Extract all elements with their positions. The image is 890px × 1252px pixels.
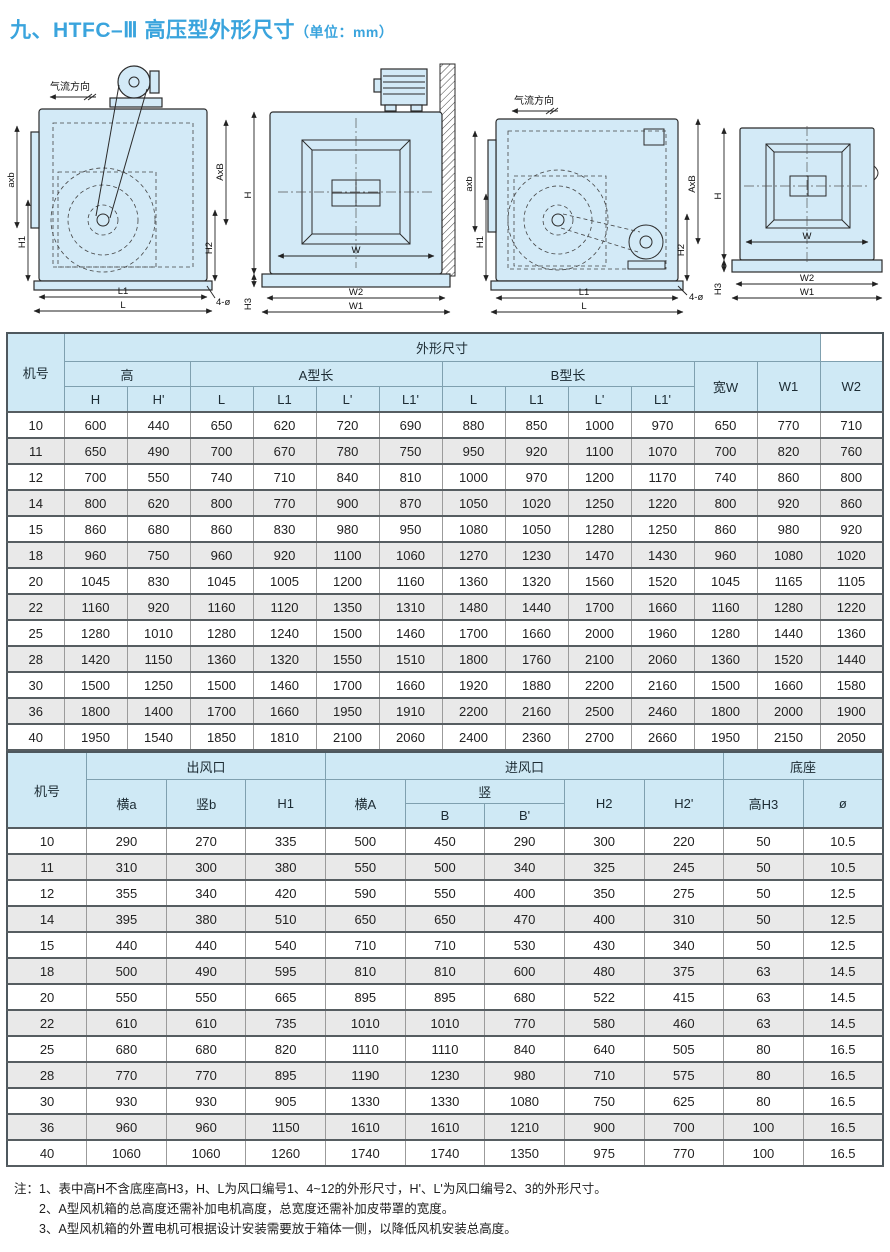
cell: 750 xyxy=(564,1088,644,1114)
dim-h: H xyxy=(243,191,254,198)
cell: 1000 xyxy=(442,464,505,490)
cell: 960 xyxy=(694,542,757,568)
cell: 300 xyxy=(564,828,644,854)
cell: 1310 xyxy=(379,594,442,620)
cell: 770 xyxy=(485,1010,565,1036)
cell: 1230 xyxy=(505,542,568,568)
cell: 950 xyxy=(442,438,505,464)
cell: 1160 xyxy=(190,594,253,620)
cell: 290 xyxy=(87,828,167,854)
cell: 960 xyxy=(87,1114,167,1140)
cell: 420 xyxy=(246,880,326,906)
cell: 1700 xyxy=(442,620,505,646)
cell: 1160 xyxy=(379,568,442,594)
cell: 1740 xyxy=(326,1140,406,1166)
cell: 1060 xyxy=(379,542,442,568)
cell: 1880 xyxy=(505,672,568,698)
cell: 14.5 xyxy=(803,984,883,1010)
cell-machine-no: 25 xyxy=(7,1036,87,1062)
header-a-L1-prime: L1' xyxy=(379,387,442,413)
dim-w1: W1 xyxy=(349,301,363,312)
cell: 325 xyxy=(564,854,644,880)
header-height-h3: 高H3 xyxy=(724,780,804,829)
cell: 1910 xyxy=(379,698,442,724)
header-w2: W2 xyxy=(820,362,883,413)
cell: 1500 xyxy=(64,672,127,698)
cell: 1100 xyxy=(316,542,379,568)
cell: 930 xyxy=(166,1088,246,1114)
cell: 1950 xyxy=(64,724,127,750)
cell: 50 xyxy=(724,828,804,854)
cell: 950 xyxy=(379,516,442,542)
cell: 460 xyxy=(644,1010,724,1036)
table-row: 40 1950 1540 1850 1810 2100 2060 2400 23… xyxy=(7,724,883,750)
cell: 340 xyxy=(485,854,565,880)
cell: 2460 xyxy=(631,698,694,724)
cell: 1500 xyxy=(694,672,757,698)
header-B-prime: B' xyxy=(485,804,565,829)
cell: 975 xyxy=(564,1140,644,1166)
drawing-a-side-view: 气流方向 xyxy=(6,60,238,318)
cell: 80 xyxy=(724,1088,804,1114)
header-base: 底座 xyxy=(724,752,883,780)
cell: 50 xyxy=(724,854,804,880)
cell: 12.5 xyxy=(803,880,883,906)
cell: 380 xyxy=(166,906,246,932)
page-title-unit: （单位：mm） xyxy=(295,24,393,40)
airflow-direction-label: 气流方向 xyxy=(512,94,558,114)
cell-machine-no: 18 xyxy=(7,958,87,984)
cell: 10.5 xyxy=(803,854,883,880)
cell: 680 xyxy=(485,984,565,1010)
cell: 1220 xyxy=(820,594,883,620)
cell-machine-no: 20 xyxy=(7,568,64,594)
cell: 970 xyxy=(631,412,694,438)
dim-h2: H2 xyxy=(204,242,215,254)
table-row: 18 960 750 960 920 1100 1060 1270 1230 1… xyxy=(7,542,883,568)
cell: 2150 xyxy=(757,724,820,750)
cell: 700 xyxy=(644,1114,724,1140)
cell: 860 xyxy=(820,490,883,516)
cell: 1020 xyxy=(820,542,883,568)
dim-l1: L1 xyxy=(579,287,590,298)
drawing-a-front-view: H W H3 W2 W1 xyxy=(242,60,468,322)
header-h2-prime: H2' xyxy=(644,780,724,829)
header-H-prime: H' xyxy=(127,387,190,413)
cell: 1810 xyxy=(253,724,316,750)
cell: 1420 xyxy=(64,646,127,672)
cell: 850 xyxy=(505,412,568,438)
cell: 980 xyxy=(316,516,379,542)
header-horizontal-A: 横A xyxy=(326,780,406,829)
cell: 1740 xyxy=(405,1140,485,1166)
cell: 2360 xyxy=(505,724,568,750)
cell: 2200 xyxy=(568,672,631,698)
cell: 1500 xyxy=(316,620,379,646)
cell-machine-no: 10 xyxy=(7,412,64,438)
cell: 1000 xyxy=(568,412,631,438)
cell: 750 xyxy=(127,542,190,568)
cell: 650 xyxy=(405,906,485,932)
cell: 1320 xyxy=(253,646,316,672)
cell: 375 xyxy=(644,958,724,984)
drawing-b-side-view: 气流方向 xyxy=(466,92,713,320)
dim-axb: axb xyxy=(466,176,475,191)
header-H: H xyxy=(64,387,127,413)
cell: 1045 xyxy=(694,568,757,594)
dim-h3: H3 xyxy=(714,283,724,295)
cell-machine-no: 30 xyxy=(7,672,64,698)
cell: 1010 xyxy=(127,620,190,646)
cell: 540 xyxy=(246,932,326,958)
cell: 1950 xyxy=(694,724,757,750)
dim-w2: W2 xyxy=(800,273,814,284)
table-row: 30 1500 1250 1500 1460 1700 1660 1920 18… xyxy=(7,672,883,698)
cell: 1050 xyxy=(442,490,505,516)
table-row: 20 1045 830 1045 1005 1200 1160 1360 132… xyxy=(7,568,883,594)
cell: 870 xyxy=(379,490,442,516)
cell: 1250 xyxy=(568,490,631,516)
header-a-L1: L1 xyxy=(253,387,316,413)
cell: 670 xyxy=(253,438,316,464)
cell: 750 xyxy=(379,438,442,464)
cell: 1280 xyxy=(757,594,820,620)
cell: 960 xyxy=(190,542,253,568)
cell: 700 xyxy=(64,464,127,490)
cell: 800 xyxy=(64,490,127,516)
cell: 2100 xyxy=(316,724,379,750)
cell: 1960 xyxy=(631,620,694,646)
cell: 650 xyxy=(326,906,406,932)
cell-machine-no: 14 xyxy=(7,490,64,516)
dim-w2: W2 xyxy=(349,287,363,298)
cell: 1350 xyxy=(316,594,379,620)
cell: 1560 xyxy=(568,568,631,594)
cell: 740 xyxy=(190,464,253,490)
cell: 2400 xyxy=(442,724,505,750)
cell-machine-no: 15 xyxy=(7,516,64,542)
cell: 600 xyxy=(485,958,565,984)
table-row: 14 395 380 510 650 650 470 400 310 50 12… xyxy=(7,906,883,932)
cell: 980 xyxy=(757,516,820,542)
cell: 1060 xyxy=(87,1140,167,1166)
cell: 920 xyxy=(505,438,568,464)
header-a-L: L xyxy=(190,387,253,413)
cell: 1210 xyxy=(485,1114,565,1140)
dim-w: W xyxy=(352,245,361,256)
table-row: 11 310 300 380 550 500 340 325 245 50 10… xyxy=(7,854,883,880)
cell: 970 xyxy=(505,464,568,490)
cell-machine-no: 11 xyxy=(7,438,64,464)
cell-machine-no: 14 xyxy=(7,906,87,932)
cell: 2500 xyxy=(568,698,631,724)
cell: 830 xyxy=(127,568,190,594)
cell: 1240 xyxy=(253,620,316,646)
cell: 2100 xyxy=(568,646,631,672)
cell: 650 xyxy=(694,412,757,438)
cell: 1060 xyxy=(166,1140,246,1166)
cell: 1700 xyxy=(568,594,631,620)
dim-holes: 4-ø xyxy=(689,292,703,303)
cell: 770 xyxy=(166,1062,246,1088)
cell: 710 xyxy=(564,1062,644,1088)
cell: 14.5 xyxy=(803,1010,883,1036)
cell: 930 xyxy=(87,1088,167,1114)
cell: 1330 xyxy=(405,1088,485,1114)
cell-machine-no: 20 xyxy=(7,984,87,1010)
cell: 1330 xyxy=(326,1088,406,1114)
cell: 770 xyxy=(87,1062,167,1088)
cell: 1520 xyxy=(757,646,820,672)
cell: 580 xyxy=(564,1010,644,1036)
cell: 1160 xyxy=(694,594,757,620)
dim-h1: H1 xyxy=(17,236,28,248)
cell: 1045 xyxy=(190,568,253,594)
cell: 710 xyxy=(820,412,883,438)
cell: 575 xyxy=(644,1062,724,1088)
cell: 1360 xyxy=(694,646,757,672)
header-vertical-b: 竖b xyxy=(166,780,246,829)
cell: 2060 xyxy=(379,724,442,750)
cell: 2000 xyxy=(568,620,631,646)
cell: 1010 xyxy=(405,1010,485,1036)
cell: 1070 xyxy=(631,438,694,464)
cell: 1500 xyxy=(190,672,253,698)
cell: 380 xyxy=(246,854,326,880)
cell: 1170 xyxy=(631,464,694,490)
cell: 680 xyxy=(127,516,190,542)
cell: 770 xyxy=(757,412,820,438)
cell: 1580 xyxy=(820,672,883,698)
page-title: 九、HTFC–Ⅲ 高压型外形尺寸（单位：mm） xyxy=(10,14,890,44)
cell: 1900 xyxy=(820,698,883,724)
drawing-b-front-view: H W H3 W2 W1 xyxy=(714,114,890,320)
cell: 1110 xyxy=(405,1036,485,1062)
cell: 80 xyxy=(724,1062,804,1088)
cell: 1430 xyxy=(631,542,694,568)
table-row: 30 930 930 905 1330 1330 1080 750 625 80… xyxy=(7,1088,883,1114)
cell: 920 xyxy=(253,542,316,568)
cell: 1950 xyxy=(316,698,379,724)
cell: 1110 xyxy=(326,1036,406,1062)
cell: 1280 xyxy=(694,620,757,646)
table-row: 28 770 770 895 1190 1230 980 710 575 80 … xyxy=(7,1062,883,1088)
cell: 550 xyxy=(87,984,167,1010)
header-outlet: 出风口 xyxy=(87,752,326,780)
cell: 100 xyxy=(724,1140,804,1166)
cell: 1020 xyxy=(505,490,568,516)
dim-h1: H1 xyxy=(475,236,486,248)
cell: 1100 xyxy=(568,438,631,464)
header-machine-no: 机号 xyxy=(7,752,87,828)
cell: 920 xyxy=(127,594,190,620)
dim-axb: axb xyxy=(6,172,17,187)
cell: 290 xyxy=(485,828,565,854)
header-w1: W1 xyxy=(757,362,820,413)
cell: 12.5 xyxy=(803,932,883,958)
cell: 900 xyxy=(564,1114,644,1140)
cell: 522 xyxy=(564,984,644,1010)
table-row: 15 440 440 540 710 710 530 430 340 50 12… xyxy=(7,932,883,958)
cell: 1080 xyxy=(757,542,820,568)
cell: 740 xyxy=(694,464,757,490)
cell: 430 xyxy=(564,932,644,958)
cell: 550 xyxy=(326,854,406,880)
table-row: 12 355 340 420 590 550 400 350 275 50 12… xyxy=(7,880,883,906)
cell: 1260 xyxy=(246,1140,326,1166)
cell: 300 xyxy=(166,854,246,880)
cell: 480 xyxy=(564,958,644,984)
page-title-text: 九、HTFC–Ⅲ 高压型外形尺寸 xyxy=(10,19,295,42)
cell: 640 xyxy=(564,1036,644,1062)
cell: 1080 xyxy=(485,1088,565,1114)
cell: 810 xyxy=(379,464,442,490)
cell: 595 xyxy=(246,958,326,984)
cell: 1360 xyxy=(442,568,505,594)
cell: 2000 xyxy=(757,698,820,724)
cell: 2050 xyxy=(820,724,883,750)
dim-holes: 4-ø xyxy=(216,297,230,308)
header-B: B xyxy=(405,804,485,829)
cell: 860 xyxy=(694,516,757,542)
cell: 1440 xyxy=(757,620,820,646)
cell: 1800 xyxy=(64,698,127,724)
cell: 440 xyxy=(166,932,246,958)
table-row: 18 500 490 595 810 810 600 480 375 63 14… xyxy=(7,958,883,984)
cell: 80 xyxy=(724,1036,804,1062)
cell: 900 xyxy=(316,490,379,516)
cell: 960 xyxy=(166,1114,246,1140)
note-line-1: 1、表中高H不含底座高H3，H、L为风口编号1、4~12的外形尺寸，H'、L'为… xyxy=(39,1179,607,1199)
cell: 16.5 xyxy=(803,1036,883,1062)
cell-machine-no: 15 xyxy=(7,932,87,958)
airflow-text: 气流方向 xyxy=(50,80,90,93)
dim-AxB: AxB xyxy=(687,175,698,192)
cell: 1005 xyxy=(253,568,316,594)
cell: 1350 xyxy=(485,1140,565,1166)
header-overall-dims: 外形尺寸 xyxy=(64,333,820,362)
cell: 690 xyxy=(379,412,442,438)
cell: 830 xyxy=(253,516,316,542)
cell: 1280 xyxy=(190,620,253,646)
cell: 1250 xyxy=(631,516,694,542)
cell: 1400 xyxy=(127,698,190,724)
motor-icon xyxy=(374,69,427,111)
cell: 920 xyxy=(820,516,883,542)
cell: 1700 xyxy=(190,698,253,724)
cell-machine-no: 22 xyxy=(7,1010,87,1036)
cell: 550 xyxy=(166,984,246,1010)
table-row: 15 860 680 860 830 980 950 1080 1050 128… xyxy=(7,516,883,542)
cell: 700 xyxy=(694,438,757,464)
cell-machine-no: 10 xyxy=(7,828,87,854)
cell: 620 xyxy=(127,490,190,516)
header-inlet: 进风口 xyxy=(326,752,724,780)
header-b-L1-prime: L1' xyxy=(631,387,694,413)
cell: 760 xyxy=(820,438,883,464)
overall-dimensions-table: 机号 外形尺寸 高 A型长 B型长 宽W W1 W2 H H' L L1 L' … xyxy=(6,332,884,751)
cell: 335 xyxy=(246,828,326,854)
cell: 1610 xyxy=(405,1114,485,1140)
cell-machine-no: 28 xyxy=(7,1062,87,1088)
table-row: 14 800 620 800 770 900 870 1050 1020 125… xyxy=(7,490,883,516)
dim-l: L xyxy=(581,301,586,312)
cell-machine-no: 40 xyxy=(7,1140,87,1166)
cell: 1550 xyxy=(316,646,379,672)
cell: 1510 xyxy=(379,646,442,672)
table-row: 10 290 270 335 500 450 290 300 220 50 10… xyxy=(7,828,883,854)
cell: 440 xyxy=(87,932,167,958)
cell: 1800 xyxy=(442,646,505,672)
header-width-w: 宽W xyxy=(694,362,757,413)
cell: 2200 xyxy=(442,698,505,724)
airflow-direction-label: 气流方向 xyxy=(50,80,96,100)
cell: 16.5 xyxy=(803,1088,883,1114)
note-line-2: 2、A型风机箱的总高度还需补加电机高度，总宽度还需补加皮带罩的宽度。 xyxy=(39,1199,607,1219)
cell: 1150 xyxy=(127,646,190,672)
cell: 650 xyxy=(190,412,253,438)
cell: 980 xyxy=(485,1062,565,1088)
openings-base-table: 机号 出风口 进风口 底座 横a 竖b H1 横A 竖 H2 H2' 高H3 ø… xyxy=(6,751,884,1167)
cell: 500 xyxy=(87,958,167,984)
cell: 840 xyxy=(316,464,379,490)
cell: 1280 xyxy=(568,516,631,542)
cell: 415 xyxy=(644,984,724,1010)
header-vertical-group: 竖 xyxy=(405,780,564,804)
table-row: 36 960 960 1150 1610 1610 1210 900 700 1… xyxy=(7,1114,883,1140)
notes-lines: 1、表中高H不含底座高H3，H、L为风口编号1、4~12的外形尺寸，H'、L'为… xyxy=(39,1179,607,1239)
cell: 63 xyxy=(724,984,804,1010)
dim-w1: W1 xyxy=(800,287,814,298)
cell: 470 xyxy=(485,906,565,932)
cell: 650 xyxy=(64,438,127,464)
cell: 1660 xyxy=(253,698,316,724)
cell: 1610 xyxy=(326,1114,406,1140)
cell: 12.5 xyxy=(803,906,883,932)
cell: 720 xyxy=(316,412,379,438)
cell: 1660 xyxy=(379,672,442,698)
cell: 490 xyxy=(127,438,190,464)
cell: 860 xyxy=(64,516,127,542)
cell: 820 xyxy=(757,438,820,464)
cell: 610 xyxy=(166,1010,246,1036)
cell: 1360 xyxy=(190,646,253,672)
cell: 2700 xyxy=(568,724,631,750)
cell: 1010 xyxy=(326,1010,406,1036)
header-a-L-prime: L' xyxy=(316,387,379,413)
cell: 810 xyxy=(326,958,406,984)
cell: 1160 xyxy=(64,594,127,620)
cell: 1230 xyxy=(405,1062,485,1088)
cell: 1660 xyxy=(631,594,694,620)
cell: 1360 xyxy=(820,620,883,646)
cell-machine-no: 12 xyxy=(7,464,64,490)
cell: 1120 xyxy=(253,594,316,620)
cell: 1700 xyxy=(316,672,379,698)
cell: 50 xyxy=(724,880,804,906)
cell: 895 xyxy=(326,984,406,1010)
cell: 310 xyxy=(644,906,724,932)
cell: 310 xyxy=(87,854,167,880)
catalog-page: 九、HTFC–Ⅲ 高压型外形尺寸（单位：mm） 气流方向 xyxy=(0,0,890,1252)
cell: 1165 xyxy=(757,568,820,594)
cell: 860 xyxy=(190,516,253,542)
cell: 270 xyxy=(166,828,246,854)
cell: 800 xyxy=(820,464,883,490)
cell: 2160 xyxy=(631,672,694,698)
cell: 1250 xyxy=(127,672,190,698)
cell: 770 xyxy=(253,490,316,516)
